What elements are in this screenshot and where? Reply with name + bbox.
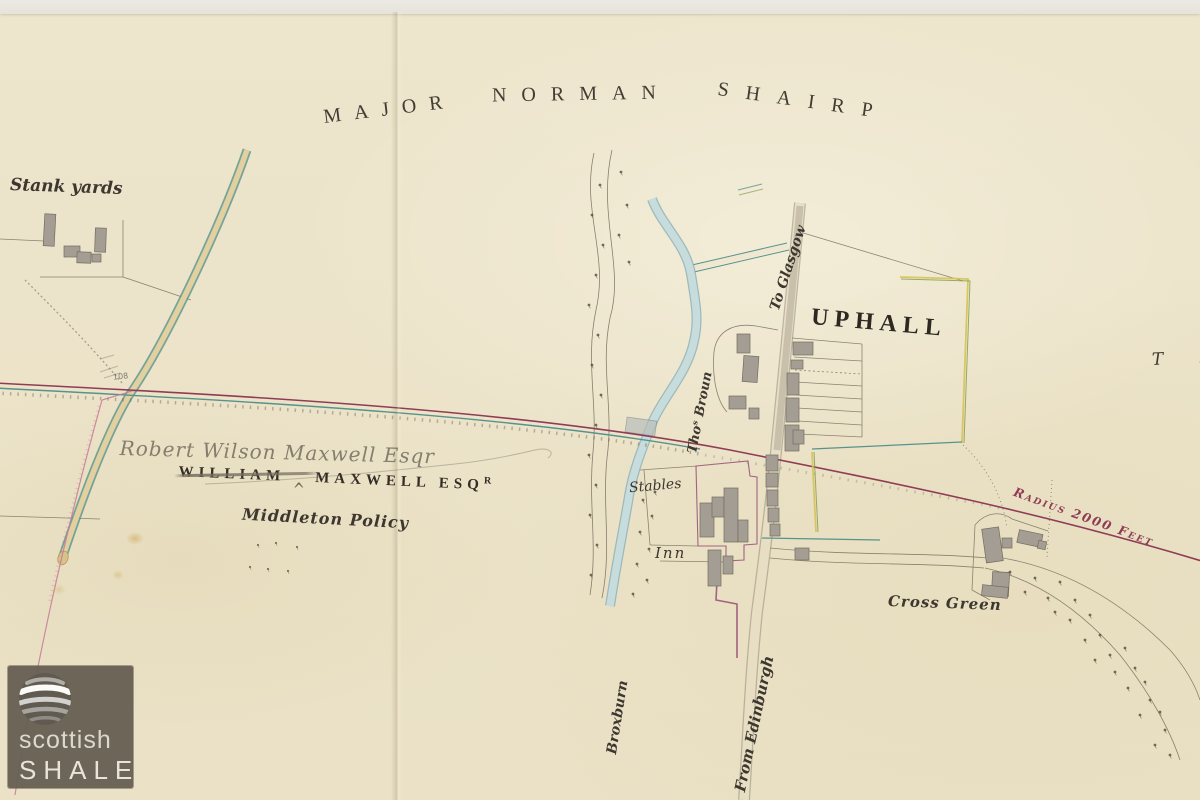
left-road [56,150,247,566]
cross-green-label: Cross Green [888,594,1002,613]
paper-fold-line [391,12,402,800]
insertion-caret-mark: ^ [293,482,305,500]
paper-stain [52,584,66,595]
scanned-estate-plan: MAJOR NORMAN SHAIRP Stank yards UPHALL T… [0,0,1200,800]
stank-yards-label: Stank yards [10,177,123,198]
tree-band-stream [590,150,615,598]
watermark-text-scottish: scottish [19,726,112,755]
branch-road [692,184,789,272]
landowner-superscript: R [484,475,497,487]
buildings-cross-green [981,527,1046,598]
watermark-text-shale: SHALE [19,755,139,786]
pencil-number: 108 [113,372,129,382]
inn-label: Inn [655,546,686,561]
paper-stain [112,570,124,580]
estate-name-word-norman: NORMAN [492,82,671,105]
scottish-shale-watermark: scottish SHALE [8,666,133,788]
map-linework [0,0,1200,800]
buildings-stankyards [43,214,106,264]
edge-partial-text: T A [1152,348,1200,369]
globe-icon [18,672,72,726]
paper-stain [126,532,144,545]
scan-edge-strip [0,0,1200,14]
buildings-inn-stables [696,461,757,586]
